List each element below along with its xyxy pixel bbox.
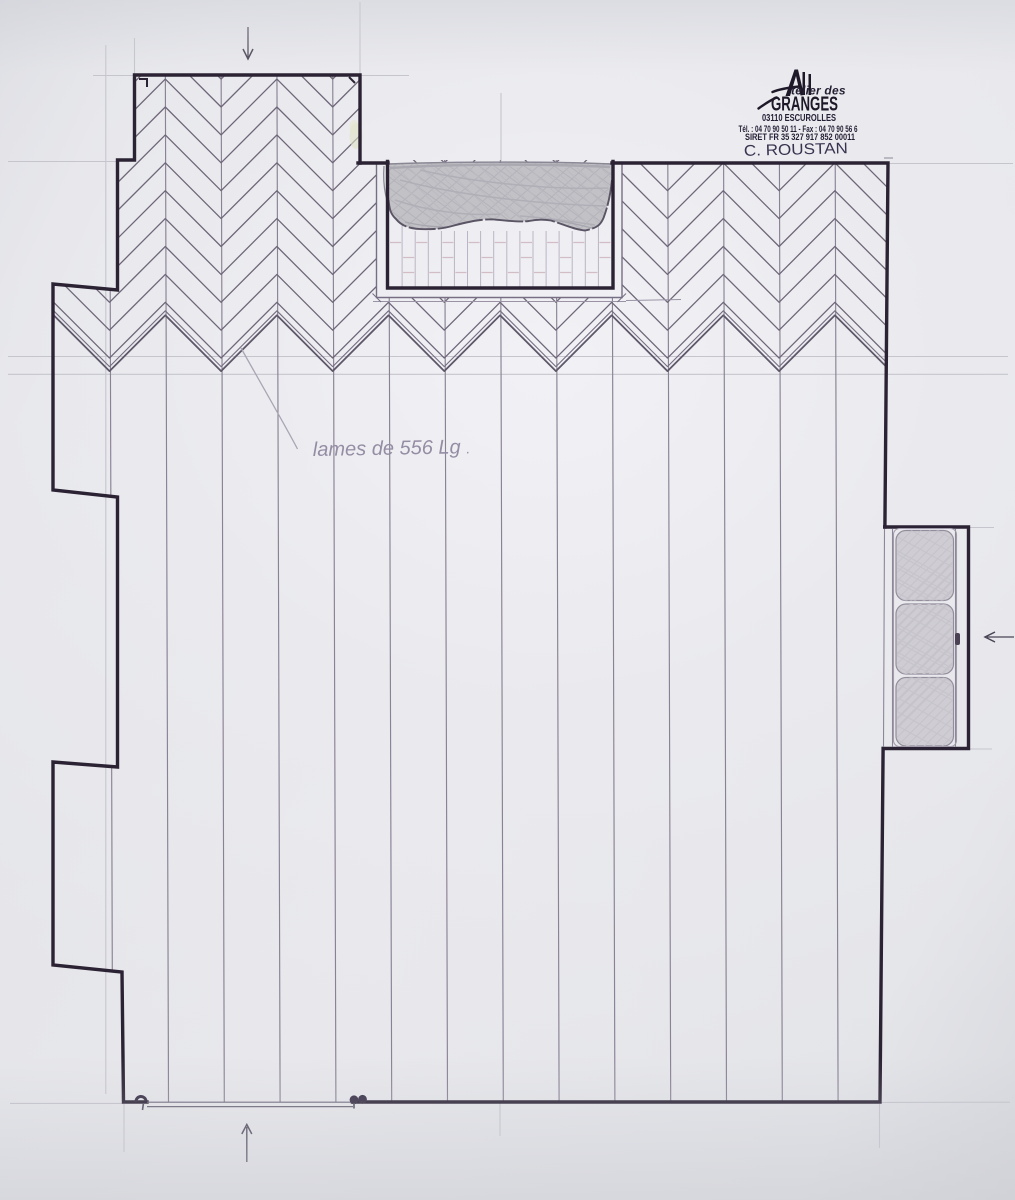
svg-text:C. ROUSTAN: C. ROUSTAN <box>744 140 848 160</box>
svg-text:lames de 556 Lg .: lames de 556 Lg . <box>313 436 471 461</box>
svg-text:Tél. : 04 70 90 50 11 - Fax :: Tél. : 04 70 90 50 11 - Fax : 04 70 90 5… <box>739 124 858 134</box>
svg-text:telier des: telier des <box>791 84 846 98</box>
svg-text:SIRET FR 35 327 917 852 00011: SIRET FR 35 327 917 852 00011 <box>745 132 855 142</box>
svg-text:03110 ESCUROLLES: 03110 ESCUROLLES <box>762 113 836 124</box>
svg-text:GRANGES: GRANGES <box>771 93 838 116</box>
